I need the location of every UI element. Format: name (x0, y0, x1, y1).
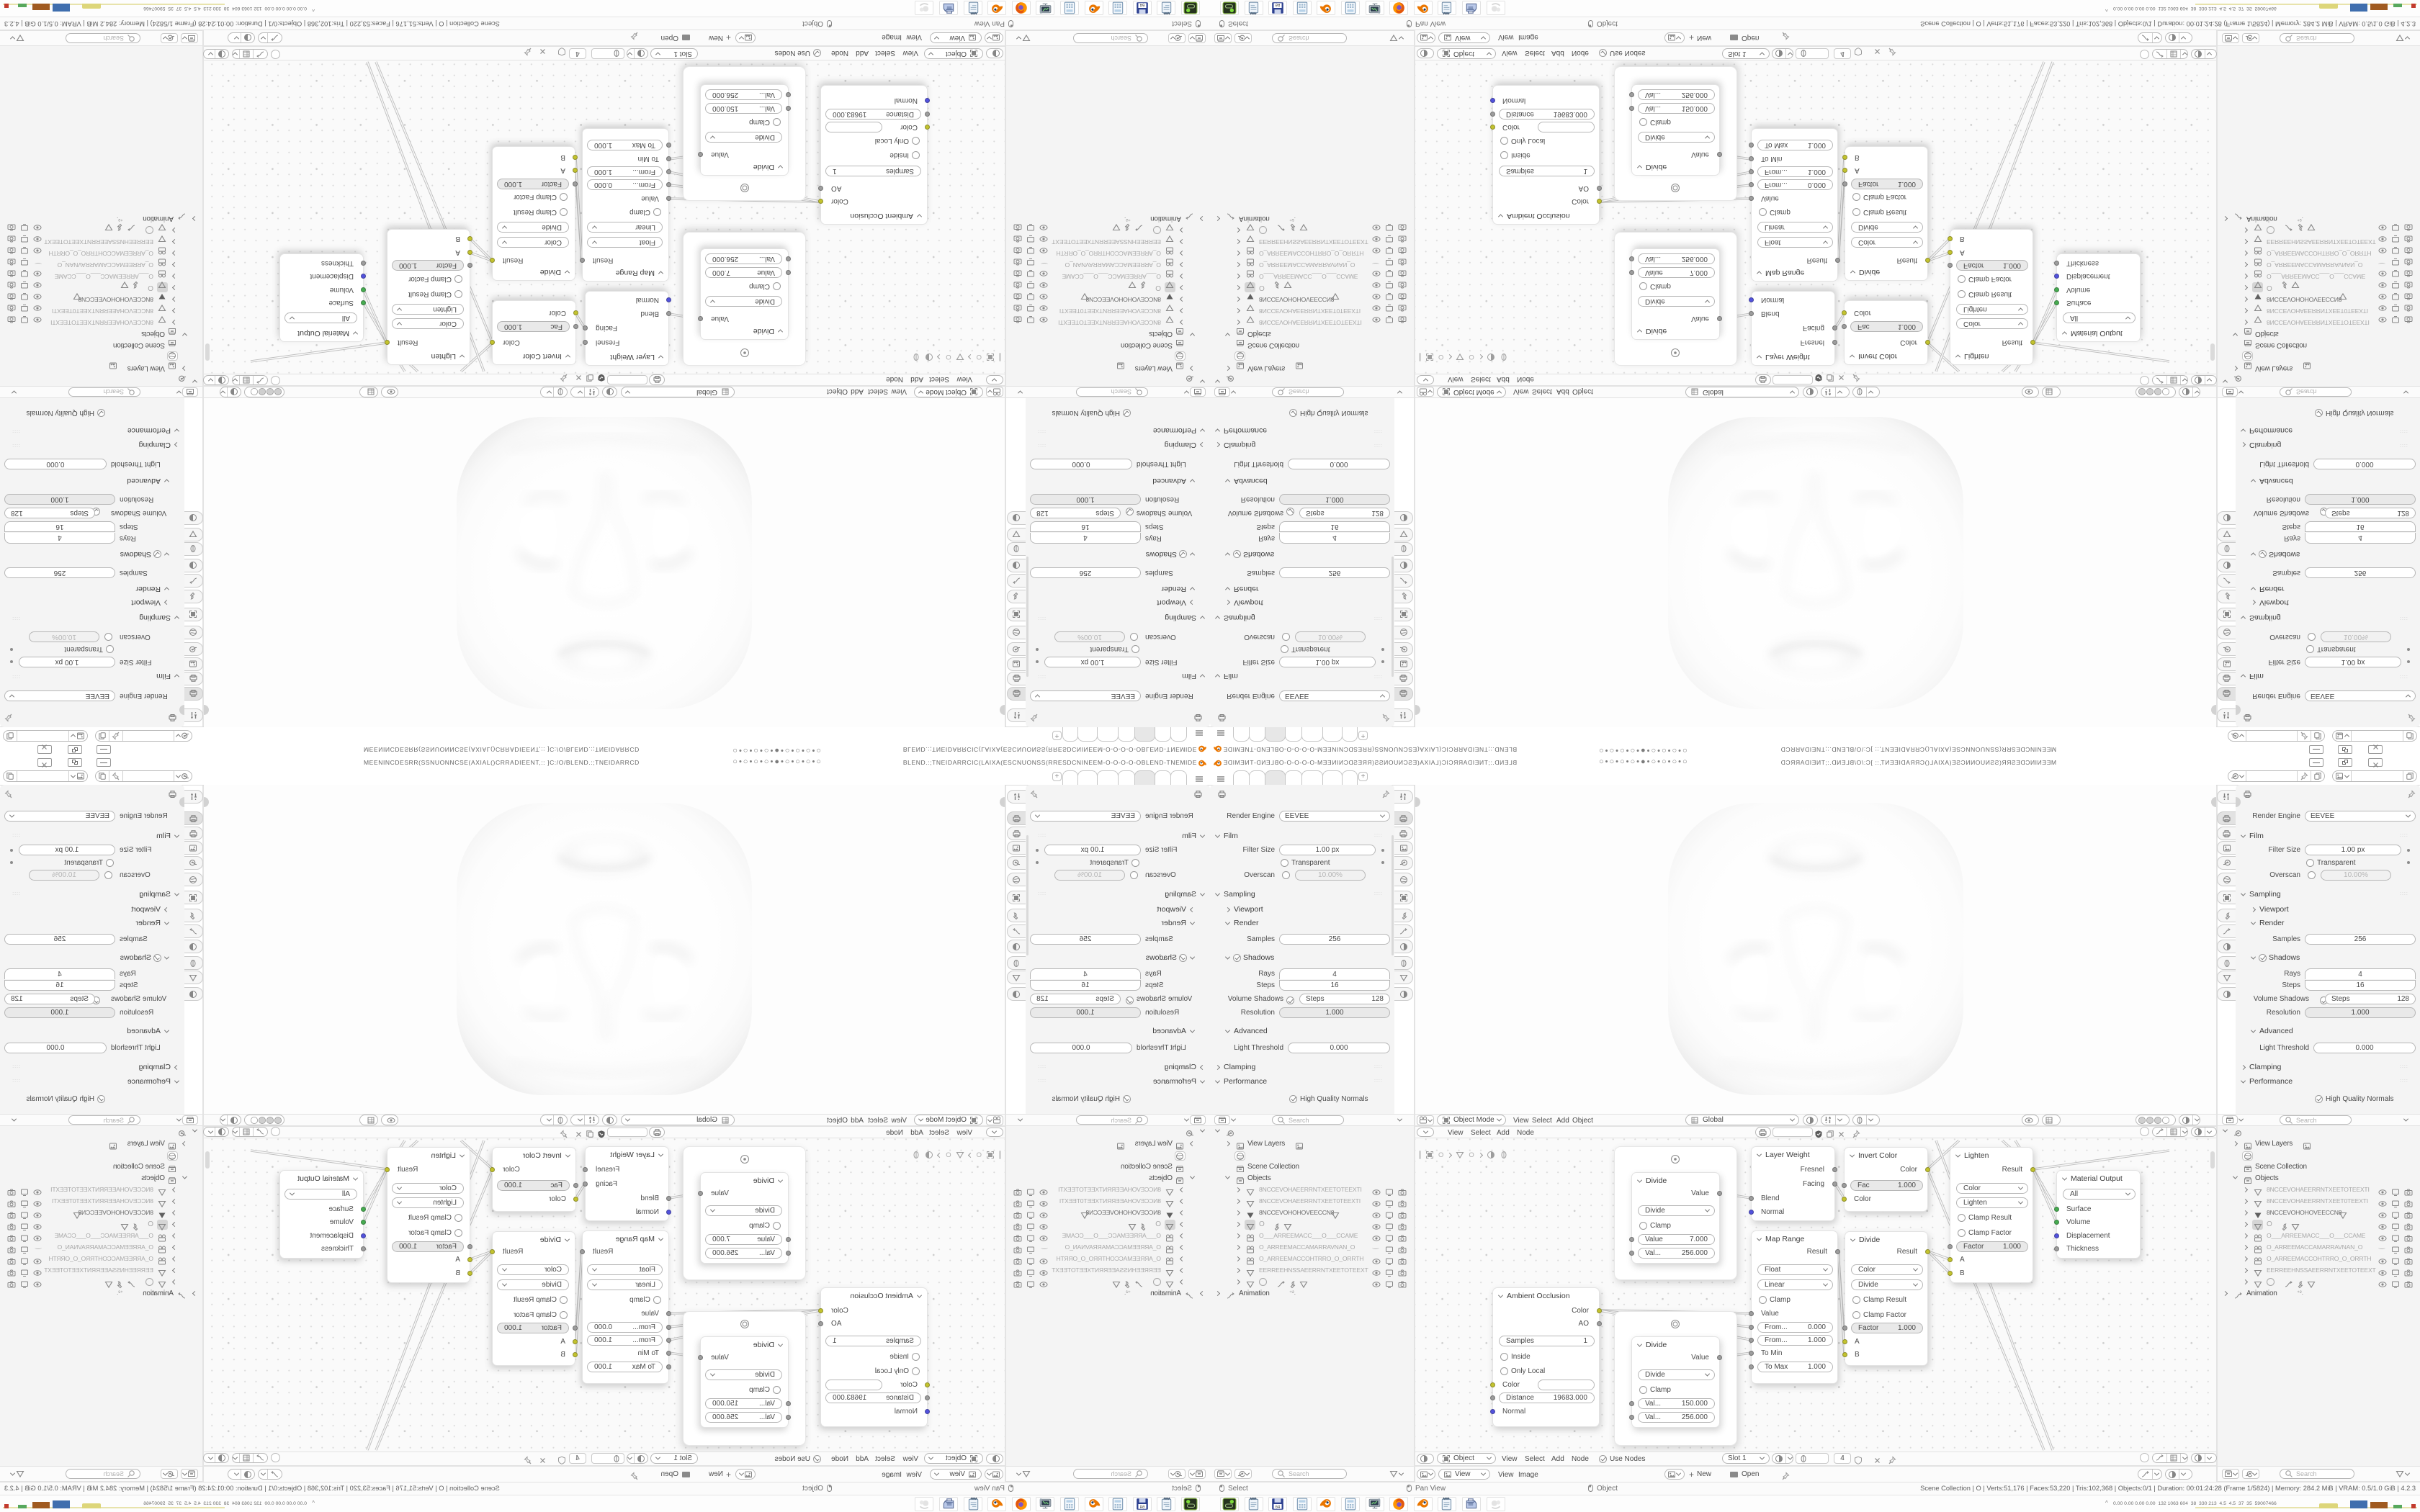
svg-text:64: 64 (1140, 1506, 1144, 1510)
svg-text:64: 64 (1140, 2, 1144, 6)
svg-text:64: 64 (1276, 2, 1280, 6)
svg-text:64: 64 (1276, 1506, 1280, 1510)
